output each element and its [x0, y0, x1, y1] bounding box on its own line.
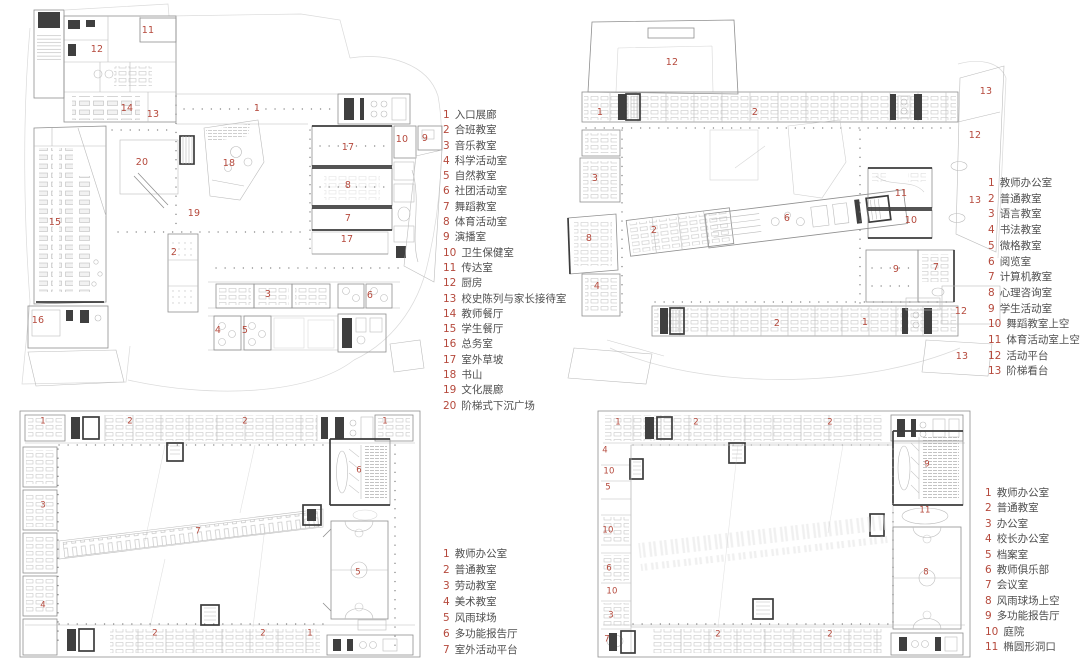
- legend-number: 15: [443, 323, 456, 335]
- legend-row: 1入口展廊: [443, 108, 566, 123]
- page: 111211413109172018819715172361645: [0, 0, 1080, 670]
- legend-number: 5: [443, 612, 450, 624]
- legend-number: 12: [443, 277, 456, 289]
- legend-number: 6: [443, 628, 450, 640]
- legend-number: 13: [988, 365, 1001, 377]
- legend-number: 16: [443, 338, 456, 350]
- room-number-label: 10: [602, 526, 613, 536]
- legend-row: 2普通教室: [985, 501, 1060, 516]
- legend-number: 12: [988, 350, 1001, 362]
- room-number-label: 2: [752, 107, 758, 118]
- legend-number: 18: [443, 369, 456, 381]
- legend-number: 10: [988, 318, 1001, 330]
- legend-row: 2普通教室: [988, 192, 1080, 208]
- room-number-label: 1: [382, 417, 388, 427]
- legend-label: 椭圆形洞口: [1003, 641, 1056, 653]
- legend-number: 6: [988, 256, 995, 268]
- legend-number: 1: [443, 109, 450, 121]
- floor-plan-1: 111211413109172018819715172361645: [8, 0, 444, 404]
- room-number-label: 1: [307, 629, 313, 639]
- legend-row: 9学生活动室: [988, 302, 1080, 318]
- legend-label: 微格教室: [1000, 240, 1042, 252]
- legend-row: 8风雨球场上空: [985, 594, 1060, 609]
- legend-number: 8: [985, 595, 992, 607]
- legend-row: 5自然教室: [443, 169, 566, 184]
- legend-number: 17: [443, 354, 456, 366]
- legend-label: 普通教室: [997, 502, 1039, 514]
- legend-row: 13校史陈列与家长接待室: [443, 292, 566, 307]
- room-number-label: 9: [893, 264, 899, 275]
- legend-label: 心理咨询室: [1000, 287, 1053, 299]
- legend-row: 9多功能报告厅: [985, 609, 1060, 624]
- legend-row: 1教师办公室: [985, 486, 1060, 501]
- room-number-label: 2: [651, 225, 657, 236]
- legend-number: 2: [443, 124, 450, 136]
- legend-row: 8心理咨询室: [988, 286, 1080, 302]
- legend-row: 5风雨球场: [443, 610, 518, 626]
- legend-row: 4科学活动室: [443, 154, 566, 169]
- legend-label: 教师餐厅: [461, 308, 503, 320]
- legend-number: 11: [988, 334, 1001, 346]
- room-number-label: 11: [142, 25, 155, 36]
- toilet-block-northeast: [338, 94, 410, 124]
- room-number-label: 17: [342, 142, 355, 153]
- legend-label: 学生活动室: [1000, 303, 1053, 315]
- legend-number: 14: [443, 308, 456, 320]
- room-number-label: 7: [933, 262, 939, 273]
- legend-label: 入口展廊: [455, 109, 497, 121]
- legend-label: 庭院: [1003, 626, 1024, 638]
- room-number-label: 13: [147, 109, 160, 120]
- legend-row: 12厨房: [443, 276, 566, 291]
- room-number-label: 17: [341, 234, 354, 245]
- legend-row: 6多功能报告厅: [443, 626, 518, 642]
- legend-row: 8体育活动室: [443, 215, 566, 230]
- classroom-band-north: [603, 415, 965, 445]
- legend-row: 6阅览室: [988, 255, 1080, 271]
- room-number-label: 12: [969, 130, 982, 141]
- legend-label: 传达室: [461, 262, 493, 274]
- legend-row: 18书山: [443, 368, 566, 383]
- legend-row: 7会议室: [985, 578, 1060, 593]
- legend-label: 室外活动平台: [455, 644, 518, 656]
- legend-number: 4: [988, 224, 995, 236]
- legend-row: 6社团活动室: [443, 184, 566, 199]
- room-number-label: 13: [969, 195, 982, 206]
- legend-number: 3: [443, 580, 450, 592]
- classroom-band-north: [25, 415, 415, 461]
- legend-label: 校长办公室: [997, 533, 1050, 545]
- legend-label: 文化展廊: [461, 384, 503, 396]
- room-number-label: 18: [223, 158, 236, 169]
- room-number-label: 10: [396, 134, 409, 145]
- legend-row: 7计算机教室: [988, 270, 1080, 286]
- room-number-label: 2: [152, 629, 158, 639]
- room-number-label: 5: [605, 483, 611, 493]
- legend-floor-1: 1入口展廊2合班教室3音乐教室4科学活动室5自然教室6社团活动室7舞蹈教室8体育…: [443, 108, 566, 414]
- legend-row: 11体育活动室上空: [988, 333, 1080, 349]
- legend-label: 社团活动室: [455, 185, 508, 197]
- legend-label: 普通教室: [1000, 193, 1042, 205]
- legend-row: 16总务室: [443, 337, 566, 352]
- room-number-label: 7: [604, 635, 610, 645]
- floor-plan-2: 121312123111361028974121213: [560, 18, 1012, 390]
- room-number-label: 6: [784, 213, 790, 224]
- legend-row: 2普通教室: [443, 562, 518, 578]
- legend-label: 室外草坡: [461, 354, 503, 366]
- legend-label: 学生餐厅: [461, 323, 503, 335]
- legend-label: 体育活动室上空: [1006, 334, 1080, 346]
- legend-label: 舞蹈教室上空: [1006, 318, 1069, 330]
- room-number-label: 9: [422, 133, 428, 144]
- legend-number: 13: [443, 293, 456, 305]
- legend-number: 8: [988, 287, 995, 299]
- legend-row: 17室外草坡: [443, 353, 566, 368]
- dining-wing: [34, 126, 106, 304]
- room-number-label: 4: [594, 281, 600, 292]
- legend-number: 1: [985, 487, 992, 499]
- room-number-label: 2: [693, 418, 699, 428]
- legend-label: 会议室: [997, 579, 1029, 591]
- room-number-label: 2: [260, 629, 266, 639]
- room-number-label: 7: [195, 527, 201, 537]
- room-number-label: 4: [215, 325, 221, 336]
- room-number-label: 3: [608, 611, 614, 621]
- room-number-label: 1: [862, 317, 868, 328]
- legend-row: 4校长办公室: [985, 532, 1060, 547]
- legend-number: 1: [443, 548, 450, 560]
- room-number-label: 12: [91, 44, 104, 55]
- legend-number: 4: [985, 533, 992, 545]
- room-number-label: 7: [345, 213, 351, 224]
- legend-label: 档案室: [997, 549, 1029, 561]
- legend-row: 3语言教室: [988, 207, 1080, 223]
- room-number-label: 1: [597, 107, 603, 118]
- legend-label: 阅览室: [1000, 256, 1032, 268]
- floor-plan-4-drawing: [593, 403, 978, 667]
- room-number-label: 5: [355, 568, 361, 578]
- legend-number: 2: [985, 502, 992, 514]
- legend-label: 劳动教室: [455, 580, 497, 592]
- legend-label: 卫生保健室: [461, 247, 514, 259]
- legend-label: 风雨球场: [455, 612, 497, 624]
- legend-number: 10: [985, 626, 998, 638]
- legend-label: 活动平台: [1006, 350, 1048, 362]
- legend-row: 19文化展廊: [443, 383, 566, 398]
- legend-number: 6: [443, 185, 450, 197]
- legend-row: 20阶梯式下沉广场: [443, 399, 566, 414]
- legend-label: 多功能报告厅: [455, 628, 518, 640]
- legend-row: 2合班教室: [443, 123, 566, 138]
- room-number-label: 20: [136, 157, 149, 168]
- legend-label: 教师办公室: [997, 487, 1050, 499]
- legend-label: 教师办公室: [455, 548, 508, 560]
- legend-label: 音乐教室: [455, 140, 497, 152]
- legend-number: 6: [985, 564, 992, 576]
- legend-number: 11: [443, 262, 456, 274]
- room-number-label: 6: [606, 564, 612, 574]
- room-number-label: 13: [980, 86, 993, 97]
- legend-row: 3音乐教室: [443, 139, 566, 154]
- room-number-label: 2: [171, 247, 177, 258]
- room-number-label: 12: [666, 57, 679, 68]
- room-number-label: 2: [827, 630, 833, 640]
- legend-number: 5: [988, 240, 995, 252]
- sunken-plaza-steps: [120, 140, 178, 194]
- outdoor-platform-ramp: [59, 505, 323, 559]
- legend-row: 13阶梯看台: [988, 364, 1080, 380]
- legend-number: 19: [443, 384, 456, 396]
- room-number-label: 15: [49, 217, 62, 228]
- legend-row: 12活动平台: [988, 349, 1080, 365]
- legend-number: 5: [985, 549, 992, 561]
- legend-label: 美术教室: [455, 596, 497, 608]
- legend-label: 演播室: [455, 231, 487, 243]
- legend-row: 10卫生保健室: [443, 246, 566, 261]
- legend-row: 7室外活动平台: [443, 642, 518, 658]
- room-number-label: 10: [603, 467, 614, 477]
- room-number-label: 11: [895, 188, 908, 199]
- classroom-band-south: [25, 605, 415, 655]
- room-number-label: 8: [586, 233, 592, 244]
- floor-plan-3-drawing: [15, 403, 432, 667]
- floor-plan-2-drawing: [560, 18, 1012, 390]
- legend-row: 5档案室: [985, 548, 1060, 563]
- legend-label: 科学活动室: [455, 155, 508, 167]
- legend-number: 2: [443, 564, 450, 576]
- floor-plan-4: 12249105111068103227: [593, 403, 978, 667]
- room-number-label: 1: [615, 418, 621, 428]
- legend-number: 11: [985, 641, 998, 653]
- legend-label: 书山: [461, 369, 482, 381]
- legend-row: 15学生餐厅: [443, 322, 566, 337]
- legend-label: 阶梯看台: [1006, 365, 1048, 377]
- legend-number: 5: [443, 170, 450, 182]
- room-number-label: 9: [924, 460, 930, 470]
- kitchen-block: [34, 10, 176, 122]
- legend-number: 9: [988, 303, 995, 315]
- legend-label: 舞蹈教室: [455, 201, 497, 213]
- legend-floor-3: 1教师办公室2普通教室3劳动教室4美术教室5风雨球场6多功能报告厅7室外活动平台: [443, 546, 518, 658]
- floor-plan-3: 122163754221: [15, 403, 432, 667]
- legend-number: 3: [443, 140, 450, 152]
- room-number-label: 19: [188, 208, 201, 219]
- room-number-label: 2: [127, 417, 133, 427]
- room-number-label: 3: [40, 501, 46, 511]
- legend-number: 9: [985, 610, 992, 622]
- west-rooms: [23, 447, 58, 655]
- legend-label: 合班教室: [455, 124, 497, 136]
- legend-row: 6教师俱乐部: [985, 563, 1060, 578]
- room-number-label: 4: [40, 601, 46, 611]
- legend-label: 计算机教室: [1000, 271, 1053, 283]
- legend-number: 7: [443, 644, 450, 656]
- legend-row: 14教师餐厅: [443, 307, 566, 322]
- legend-number: 3: [985, 518, 992, 530]
- legend-label: 教师办公室: [1000, 177, 1053, 189]
- legend-number: 4: [443, 596, 450, 608]
- legend-number: 1: [988, 177, 995, 189]
- legend-label: 自然教室: [455, 170, 497, 182]
- room-number-label: 14: [121, 103, 134, 114]
- legend-row: 1教师办公室: [988, 176, 1080, 192]
- reading-room-band: [705, 190, 908, 248]
- classroom-strip-north: [582, 92, 958, 128]
- legend-number: 7: [988, 271, 995, 283]
- east-rooms-and-grass-slope: [394, 126, 442, 282]
- legend-number: 2: [988, 193, 995, 205]
- room-number-label: 12: [955, 306, 968, 317]
- legend-number: 7: [985, 579, 992, 591]
- room-number-label: 2: [774, 318, 780, 329]
- legend-row: 4美术教室: [443, 594, 518, 610]
- room-number-label: 6: [367, 290, 373, 301]
- room-number-label: 2: [827, 418, 833, 428]
- room-number-label: 2: [242, 417, 248, 427]
- legend-number: 7: [443, 201, 450, 213]
- legend-number: 3: [988, 208, 995, 220]
- legend-row: 9演播室: [443, 230, 566, 245]
- classroom-cluster: [626, 208, 734, 256]
- room-number-label: 10: [606, 587, 617, 597]
- room-number-label: 5: [242, 325, 248, 336]
- room-number-label: 10: [905, 215, 918, 226]
- legend-label: 普通教室: [455, 564, 497, 576]
- room-number-label: 1: [254, 103, 260, 114]
- floor-plan-1-drawing: [8, 0, 444, 404]
- legend-row: 3劳动教室: [443, 578, 518, 594]
- legend-label: 阶梯式下沉广场: [461, 400, 535, 412]
- legend-row: 3办公室: [985, 517, 1060, 532]
- room-number-label: 1: [40, 417, 46, 427]
- room-number-label: 11: [919, 506, 930, 516]
- legend-label: 总务室: [461, 338, 493, 350]
- legend-row: 10舞蹈教室上空: [988, 317, 1080, 333]
- activity-platform-north: [588, 20, 738, 94]
- court-void: [893, 527, 961, 629]
- legend-label: 校史陈列与家长接待室: [461, 293, 566, 305]
- room-number-label: 13: [956, 351, 969, 362]
- legend-label: 风雨球场上空: [997, 595, 1060, 607]
- legend-row: 11传达室: [443, 261, 566, 276]
- room-number-label: 4: [602, 446, 608, 456]
- legend-number: 10: [443, 247, 456, 259]
- legend-floor-2: 1教师办公室2普通教室3语言教室4书法教室5微格教室6阅览室7计算机教室8心理咨…: [988, 176, 1080, 380]
- room-number-label: 6: [356, 466, 362, 476]
- legend-row: 10庭院: [985, 625, 1060, 640]
- room-number-label: 16: [32, 315, 45, 326]
- legend-label: 办公室: [997, 518, 1029, 530]
- legend-row: 7舞蹈教室: [443, 200, 566, 215]
- legend-label: 多功能报告厅: [997, 610, 1060, 622]
- legend-row: 11椭圆形洞口: [985, 640, 1060, 655]
- legend-row: 4书法教室: [988, 223, 1080, 239]
- room-number-label: 8: [923, 568, 929, 578]
- legend-label: 语言教室: [1000, 208, 1042, 220]
- legend-row: 5微格教室: [988, 239, 1080, 255]
- room-number-label: 3: [592, 173, 598, 184]
- legend-row: 1教师办公室: [443, 546, 518, 562]
- legend-floor-4: 1教师办公室2普通教室3办公室4校长办公室5档案室6教师俱乐部7会议室8风雨球场…: [985, 486, 1060, 655]
- legend-label: 书法教室: [1000, 224, 1042, 236]
- room-number-label: 2: [715, 630, 721, 640]
- activity-rooms-south: [208, 314, 424, 372]
- legend-number: 8: [443, 216, 450, 228]
- legend-number: 4: [443, 155, 450, 167]
- legend-label: 厨房: [461, 277, 482, 289]
- classroom-strip-south: [652, 302, 958, 336]
- room-number-label: 8: [345, 180, 351, 191]
- legend-number: 20: [443, 400, 456, 412]
- legend-label: 体育活动室: [455, 216, 508, 228]
- room-number-label: 3: [265, 289, 271, 300]
- legend-number: 9: [443, 231, 450, 243]
- legend-label: 教师俱乐部: [997, 564, 1050, 576]
